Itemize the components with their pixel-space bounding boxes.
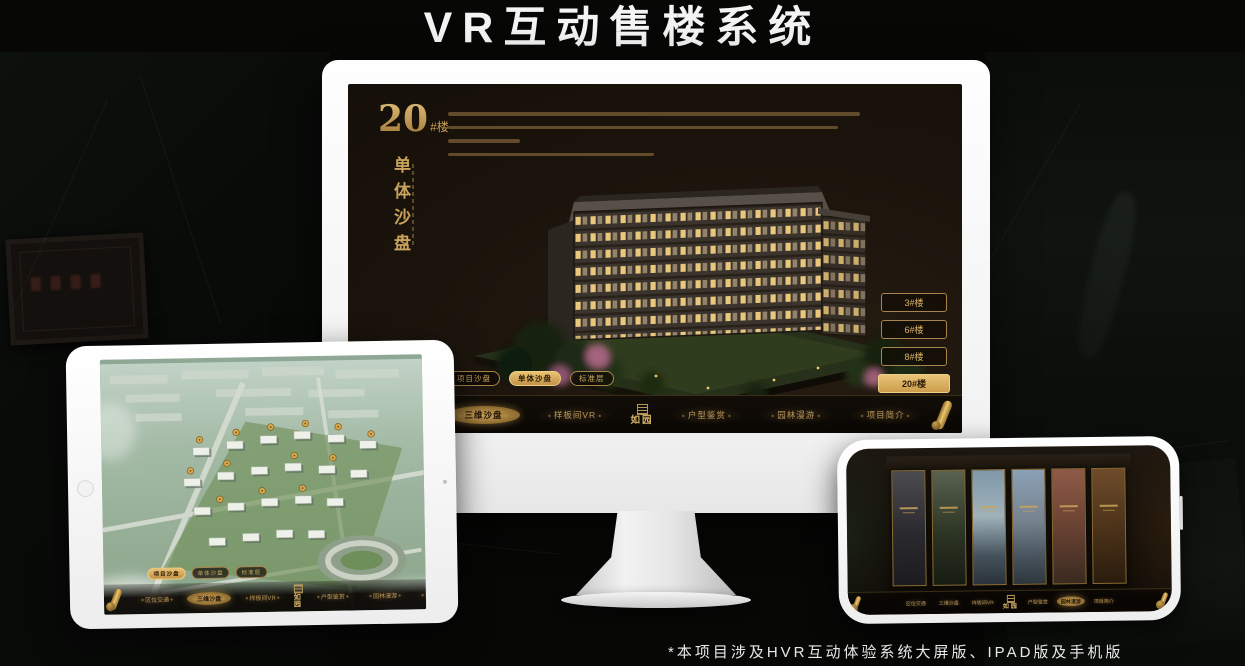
brand-seal-icon xyxy=(1007,594,1015,602)
section-title-vertical: 单体沙盘 xyxy=(388,156,413,260)
phone-navbar: 区位交通 三维沙盘 样板间VR 如园 户型鉴赏 园林漫游 项目简介 xyxy=(848,588,1172,615)
nav-item-unit-plans[interactable]: 户型鉴赏 xyxy=(671,406,743,424)
nav-item-garden-tour[interactable]: 园林漫游 xyxy=(760,406,832,424)
stage: VR互动售楼系统 20#楼 单体沙盘 xyxy=(0,0,1245,666)
gallery-panel-row xyxy=(846,467,1171,587)
phone-side-button[interactable] xyxy=(1180,496,1183,530)
tablet-home-button[interactable] xyxy=(77,479,94,496)
building-headline: 20#楼 xyxy=(378,98,449,140)
tab-project-sandbox[interactable]: 项目沙盘 xyxy=(448,371,500,386)
description-line xyxy=(448,139,520,143)
tablet-nav-showroom-vr[interactable]: 样板间VR xyxy=(239,590,286,604)
brand-logo-text: 如园 xyxy=(631,416,654,426)
description-line xyxy=(448,126,838,130)
brand-logo-text: 如园 xyxy=(1003,603,1019,609)
tablet-device: 项目沙盘 单体沙盘 标准层 区位交通 三维沙盘 样板间VR 如园 户型鉴赏 园林… xyxy=(66,340,459,630)
tablet-brand-logo: 如园 xyxy=(294,584,303,608)
section-title-english-decor xyxy=(412,164,414,248)
tab-single-sandbox[interactable]: 单体沙盘 xyxy=(509,371,561,386)
scroll-ornament-icon[interactable] xyxy=(1158,592,1168,609)
tablet-nav-location[interactable]: 区位交通 xyxy=(135,592,179,606)
brand-logo: 如园 xyxy=(631,404,654,426)
tablet-tab-single-sandbox[interactable]: 单体沙盘 xyxy=(191,567,229,580)
brand-logo-text: 如园 xyxy=(294,594,303,608)
phone-nav-garden-tour[interactable]: 园林漫游 xyxy=(1057,596,1085,606)
description-line xyxy=(448,112,860,116)
floor-button-20[interactable]: 20#楼 xyxy=(878,374,950,393)
tablet-navbar: 区位交通 三维沙盘 样板间VR 如园 户型鉴赏 园林漫游 项目简介 xyxy=(104,579,426,615)
tablet-nav-project-intro[interactable]: 项目简介 xyxy=(415,587,426,601)
floor-button-6[interactable]: 6#楼 xyxy=(881,320,947,339)
page-title: VR互动售楼系统 xyxy=(0,0,1245,56)
phone-device: 区位交通 三维沙盘 样板间VR 如园 户型鉴赏 园林漫游 项目简介 xyxy=(837,436,1181,624)
gallery-panel[interactable] xyxy=(1051,468,1086,584)
monitor-stand-base xyxy=(561,592,751,608)
tablet-camera-icon xyxy=(443,479,447,483)
floor-button-group: 3#楼 6#楼 8#楼 20#楼 xyxy=(878,293,950,393)
phone-nav-unit-plans[interactable]: 户型鉴赏 xyxy=(1024,596,1052,606)
tablet-nav-garden-tour[interactable]: 园林漫游 xyxy=(363,588,407,602)
gallery-panel[interactable] xyxy=(1011,469,1046,585)
background-screenshot-band xyxy=(984,161,1245,368)
brand-seal-icon xyxy=(637,404,648,415)
building-number: 20 xyxy=(378,98,428,140)
background-plaque xyxy=(5,232,148,345)
scroll-ornament-icon[interactable] xyxy=(851,596,861,613)
gallery-panel[interactable] xyxy=(891,470,926,586)
monitor-stand-neck xyxy=(576,511,736,595)
tablet-nav-3d-sandbox[interactable]: 三维沙盘 xyxy=(187,591,231,605)
background-road-line xyxy=(980,103,1081,277)
phone-nav-showroom-vr[interactable]: 样板间VR xyxy=(968,597,998,607)
footnote: *本项目涉及HVR互动体验系统大屏版、IPAD版及手机版 xyxy=(668,641,1123,662)
background-river xyxy=(1070,188,1144,361)
nav-item-showroom-vr[interactable]: 样板间VR xyxy=(537,406,613,424)
view-tab-group: 项目沙盘 单体沙盘 标准层 xyxy=(448,371,614,386)
plaque-glyphs xyxy=(30,273,111,291)
gallery-panel[interactable] xyxy=(931,470,966,586)
phone-nav-location[interactable]: 区位交通 xyxy=(902,598,930,608)
tablet-tab-standard-floor[interactable]: 标准层 xyxy=(235,566,267,579)
floor-button-3[interactable]: 3#楼 xyxy=(881,293,947,312)
tablet-view-tab-group: 项目沙盘 单体沙盘 标准层 xyxy=(147,566,267,580)
tablet-tab-project-sandbox[interactable]: 项目沙盘 xyxy=(147,567,185,580)
scroll-ornament-icon[interactable] xyxy=(108,588,122,611)
background-road-line xyxy=(13,100,107,311)
tablet-nav-unit-plans[interactable]: 户型鉴赏 xyxy=(311,589,355,603)
floor-button-8[interactable]: 8#楼 xyxy=(881,347,947,366)
plaque-border xyxy=(19,246,135,332)
phone-nav-project-intro[interactable]: 项目简介 xyxy=(1090,596,1118,606)
nav-item-project-intro[interactable]: 项目简介 xyxy=(850,406,922,424)
background-road-line xyxy=(140,76,221,324)
nav-item-3d-sandbox[interactable]: 三维沙盘 xyxy=(447,406,519,424)
gallery-panel[interactable] xyxy=(971,469,1006,585)
tab-standard-floor[interactable]: 标准层 xyxy=(570,371,614,386)
phone-nav-3d-sandbox[interactable]: 三维沙盘 xyxy=(935,598,963,608)
building-number-suffix: #楼 xyxy=(430,120,449,134)
scroll-ornament-icon[interactable] xyxy=(934,399,954,430)
phone-screen: 区位交通 三维沙盘 样板间VR 如园 户型鉴赏 园林漫游 项目简介 xyxy=(846,445,1172,615)
phone-brand-logo: 如园 xyxy=(1003,594,1019,609)
tablet-screen: 项目沙盘 单体沙盘 标准层 区位交通 三维沙盘 样板间VR 如园 户型鉴赏 园林… xyxy=(100,354,426,615)
gallery-panel[interactable] xyxy=(1091,468,1126,584)
brand-seal-icon xyxy=(294,584,303,593)
